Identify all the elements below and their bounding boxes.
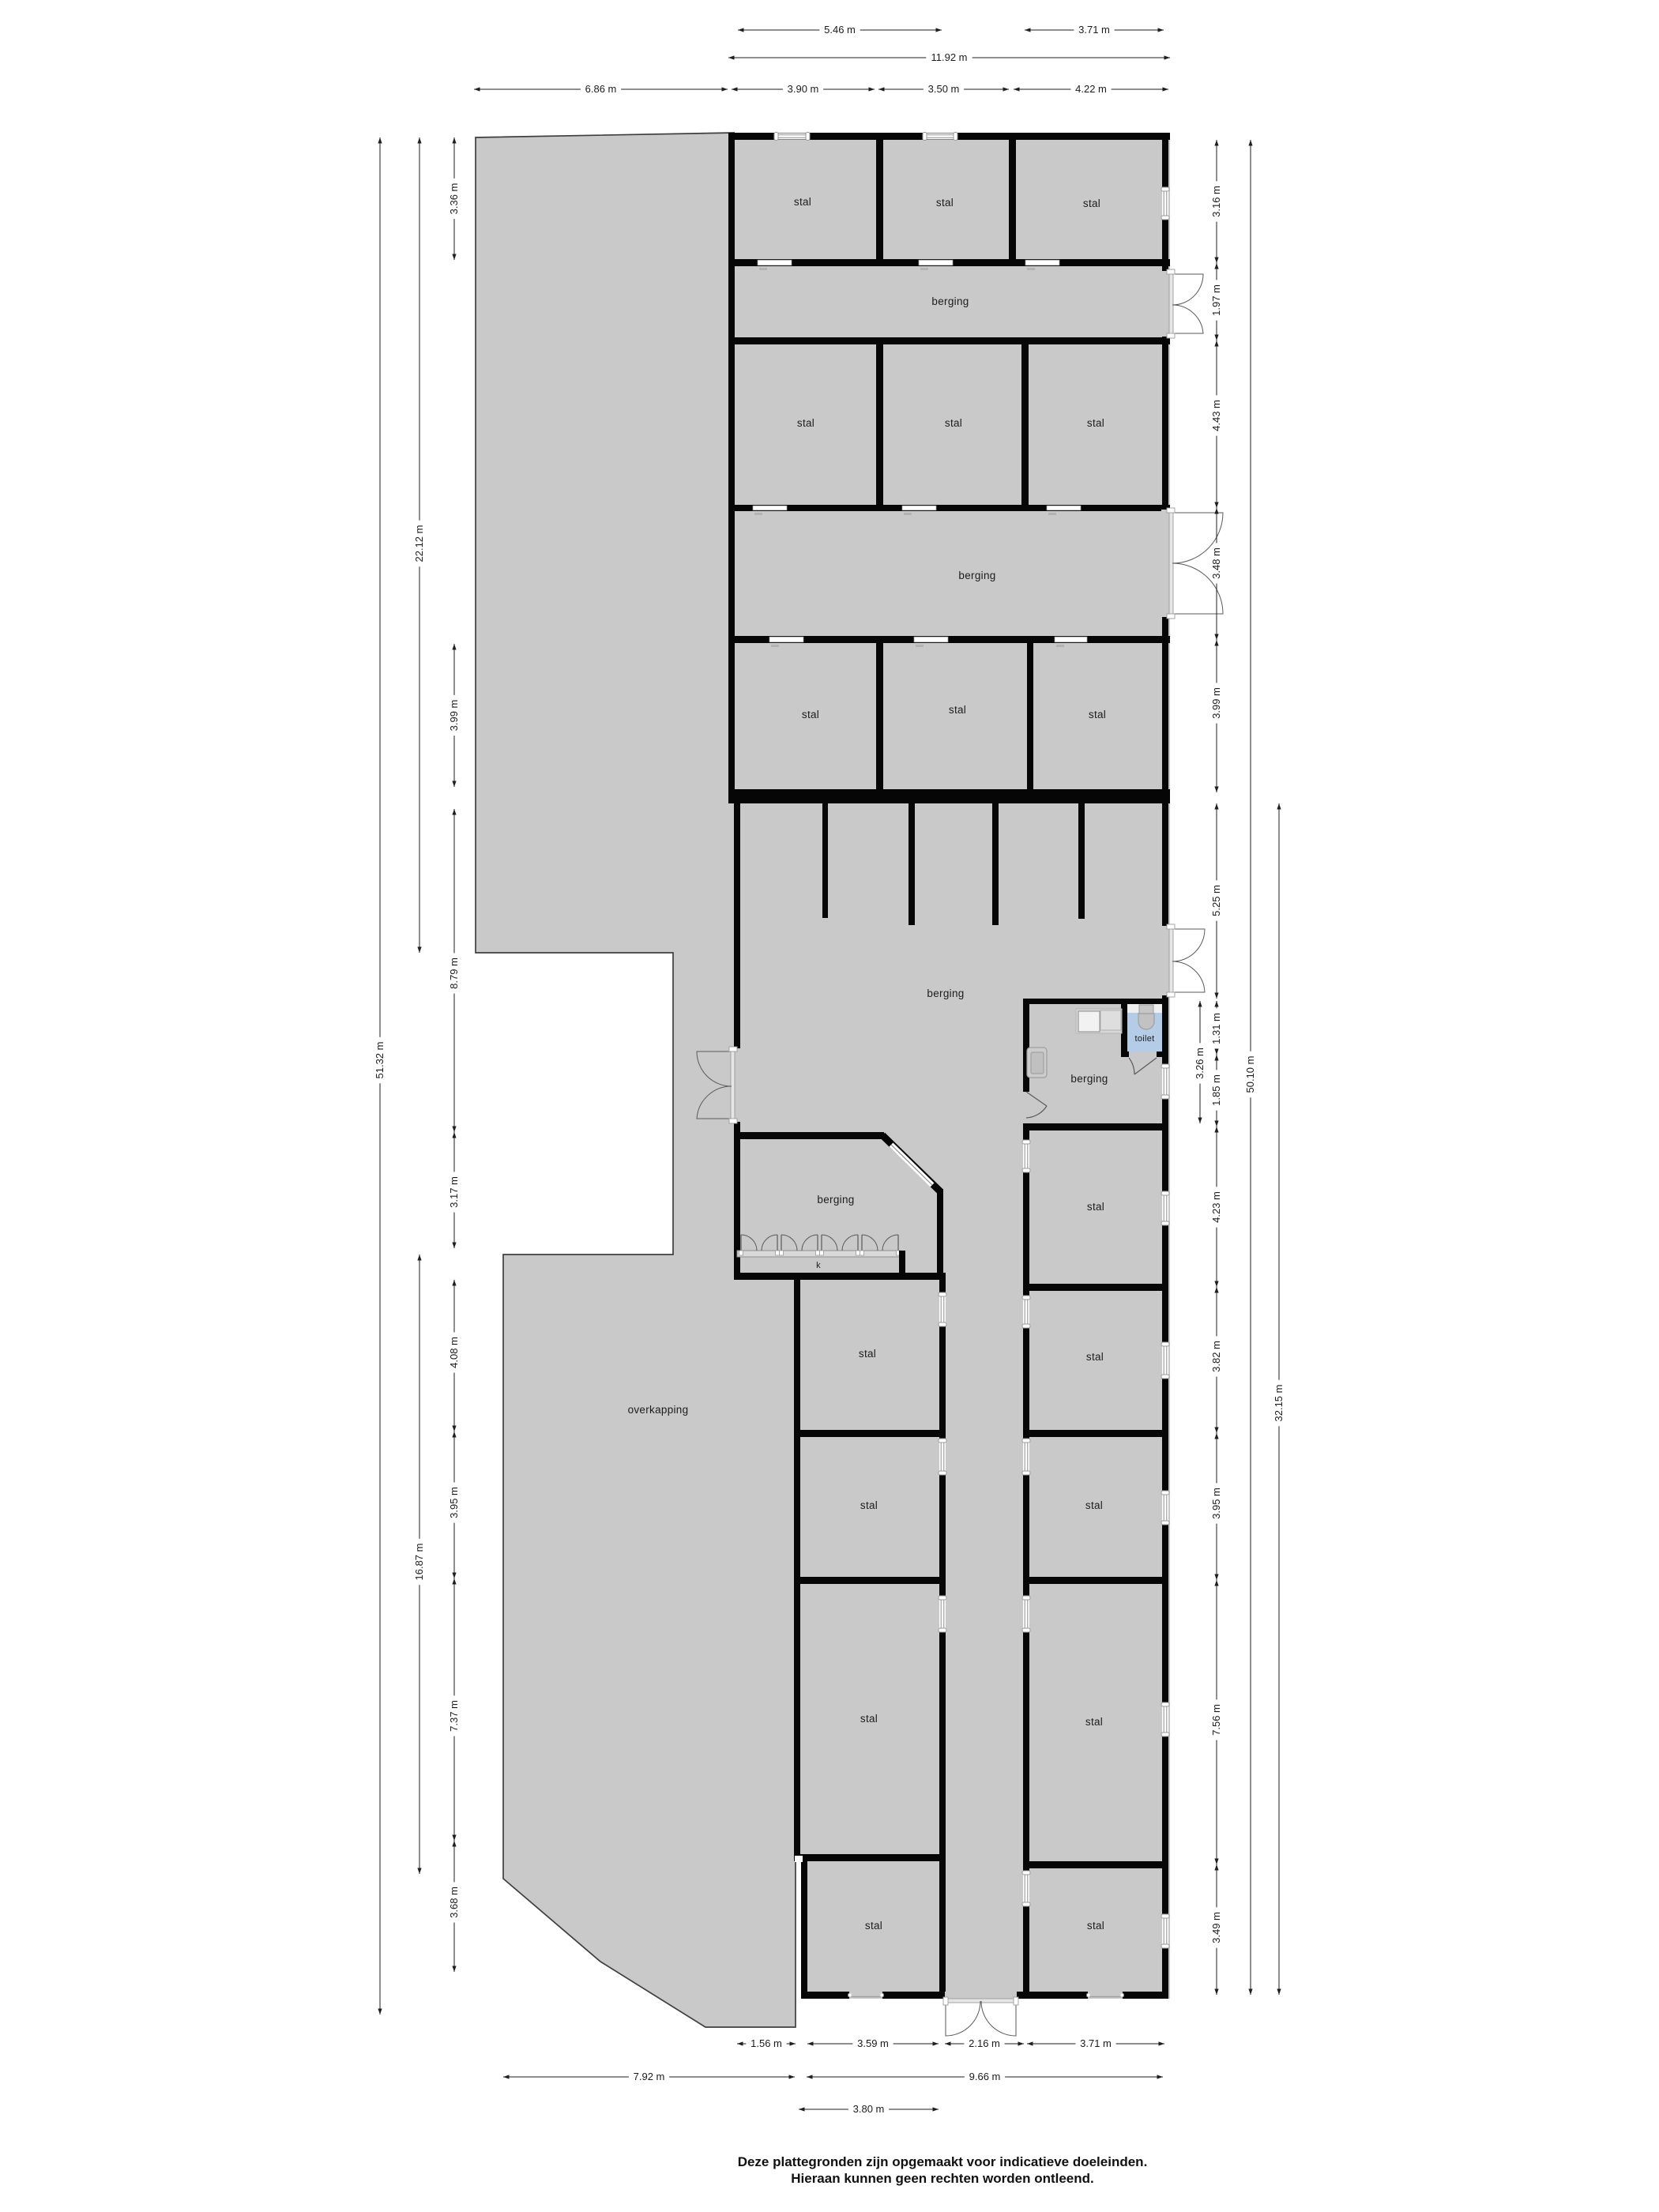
svg-text:3.95 m: 3.95 m	[448, 1487, 460, 1518]
svg-text:51.32 m: 51.32 m	[374, 1042, 386, 1079]
svg-text:22.12 m: 22.12 m	[413, 525, 425, 562]
svg-text:3.71 m: 3.71 m	[1080, 2037, 1112, 2049]
svg-text:1.85 m: 1.85 m	[1210, 1074, 1222, 1106]
svg-text:stal: stal	[1083, 197, 1100, 209]
svg-text:4.23 m: 4.23 m	[1210, 1191, 1222, 1223]
svg-text:stal: stal	[936, 197, 954, 209]
svg-text:berging: berging	[1070, 1073, 1108, 1085]
svg-text:4.43 m: 4.43 m	[1210, 400, 1222, 431]
svg-text:toilet: toilet	[1134, 1034, 1154, 1044]
svg-text:11.92 m: 11.92 m	[931, 51, 967, 63]
svg-text:berging: berging	[931, 295, 969, 307]
svg-text:stal: stal	[859, 1348, 876, 1360]
svg-text:3.26 m: 3.26 m	[1194, 1048, 1206, 1079]
svg-text:3.50 m: 3.50 m	[928, 83, 960, 95]
svg-text:berging: berging	[927, 987, 964, 999]
svg-text:7.37 m: 7.37 m	[448, 1700, 460, 1732]
svg-text:3.71 m: 3.71 m	[1078, 24, 1110, 36]
svg-text:5.46 m: 5.46 m	[824, 24, 856, 36]
svg-text:50.10 m: 50.10 m	[1244, 1056, 1256, 1093]
svg-text:1.97 m: 1.97 m	[1210, 284, 1222, 316]
svg-text:4.22 m: 4.22 m	[1075, 83, 1107, 95]
svg-text:Deze plattegronden zijn opgema: Deze plattegronden zijn opgemaakt voor i…	[738, 2154, 1148, 2169]
svg-text:5.25 m: 5.25 m	[1210, 885, 1222, 916]
svg-text:3.82 m: 3.82 m	[1210, 1341, 1222, 1372]
svg-text:berging: berging	[817, 1194, 854, 1206]
svg-text:6.86 m: 6.86 m	[585, 83, 617, 95]
svg-text:k: k	[816, 1261, 821, 1270]
svg-text:berging: berging	[958, 570, 995, 581]
svg-text:4.08 m: 4.08 m	[448, 1337, 460, 1368]
svg-text:9.66 m: 9.66 m	[969, 2071, 1001, 2082]
svg-text:8.79 m: 8.79 m	[448, 957, 460, 989]
svg-text:7.56 m: 7.56 m	[1210, 1704, 1222, 1736]
svg-text:stal: stal	[802, 709, 819, 720]
svg-text:3.90 m: 3.90 m	[788, 83, 819, 95]
svg-text:stal: stal	[1085, 1716, 1103, 1728]
svg-text:1.56 m: 1.56 m	[750, 2037, 782, 2049]
svg-text:2.16 m: 2.16 m	[969, 2037, 1000, 2049]
svg-text:3.80 m: 3.80 m	[853, 2103, 885, 2115]
svg-text:Hieraan kunnen geen rechten wo: Hieraan kunnen geen rechten worden ontle…	[791, 2171, 1094, 2186]
svg-text:3.17 m: 3.17 m	[448, 1176, 460, 1208]
svg-text:16.87 m: 16.87 m	[413, 1544, 425, 1581]
svg-text:3.59 m: 3.59 m	[857, 2037, 889, 2049]
svg-text:3.95 m: 3.95 m	[1210, 1488, 1222, 1519]
svg-text:3.68 m: 3.68 m	[448, 1887, 460, 1918]
svg-text:stal: stal	[945, 417, 962, 429]
svg-text:stal: stal	[860, 1713, 878, 1725]
svg-text:3.16 m: 3.16 m	[1210, 186, 1222, 217]
svg-text:stal: stal	[1085, 1499, 1103, 1511]
svg-text:3.48 m: 3.48 m	[1210, 547, 1222, 579]
svg-text:32.15 m: 32.15 m	[1273, 1385, 1285, 1422]
svg-text:stal: stal	[794, 196, 811, 208]
svg-text:stal: stal	[1087, 1920, 1104, 1932]
svg-text:stal: stal	[797, 417, 814, 429]
svg-text:stal: stal	[865, 1920, 882, 1932]
svg-text:3.36 m: 3.36 m	[448, 183, 460, 215]
svg-text:3.99 m: 3.99 m	[448, 700, 460, 732]
svg-text:overkapping: overkapping	[628, 1404, 689, 1416]
svg-text:stal: stal	[1087, 1201, 1104, 1213]
svg-text:stal: stal	[860, 1499, 878, 1511]
svg-text:3.99 m: 3.99 m	[1210, 687, 1222, 719]
svg-text:1.31 m: 1.31 m	[1210, 1013, 1222, 1044]
svg-text:stal: stal	[1087, 417, 1104, 429]
svg-text:3.49 m: 3.49 m	[1210, 1912, 1222, 1943]
svg-text:stal: stal	[949, 704, 966, 716]
svg-text:stal: stal	[1089, 709, 1106, 720]
svg-text:7.92 m: 7.92 m	[634, 2071, 665, 2082]
svg-text:stal: stal	[1086, 1351, 1104, 1363]
